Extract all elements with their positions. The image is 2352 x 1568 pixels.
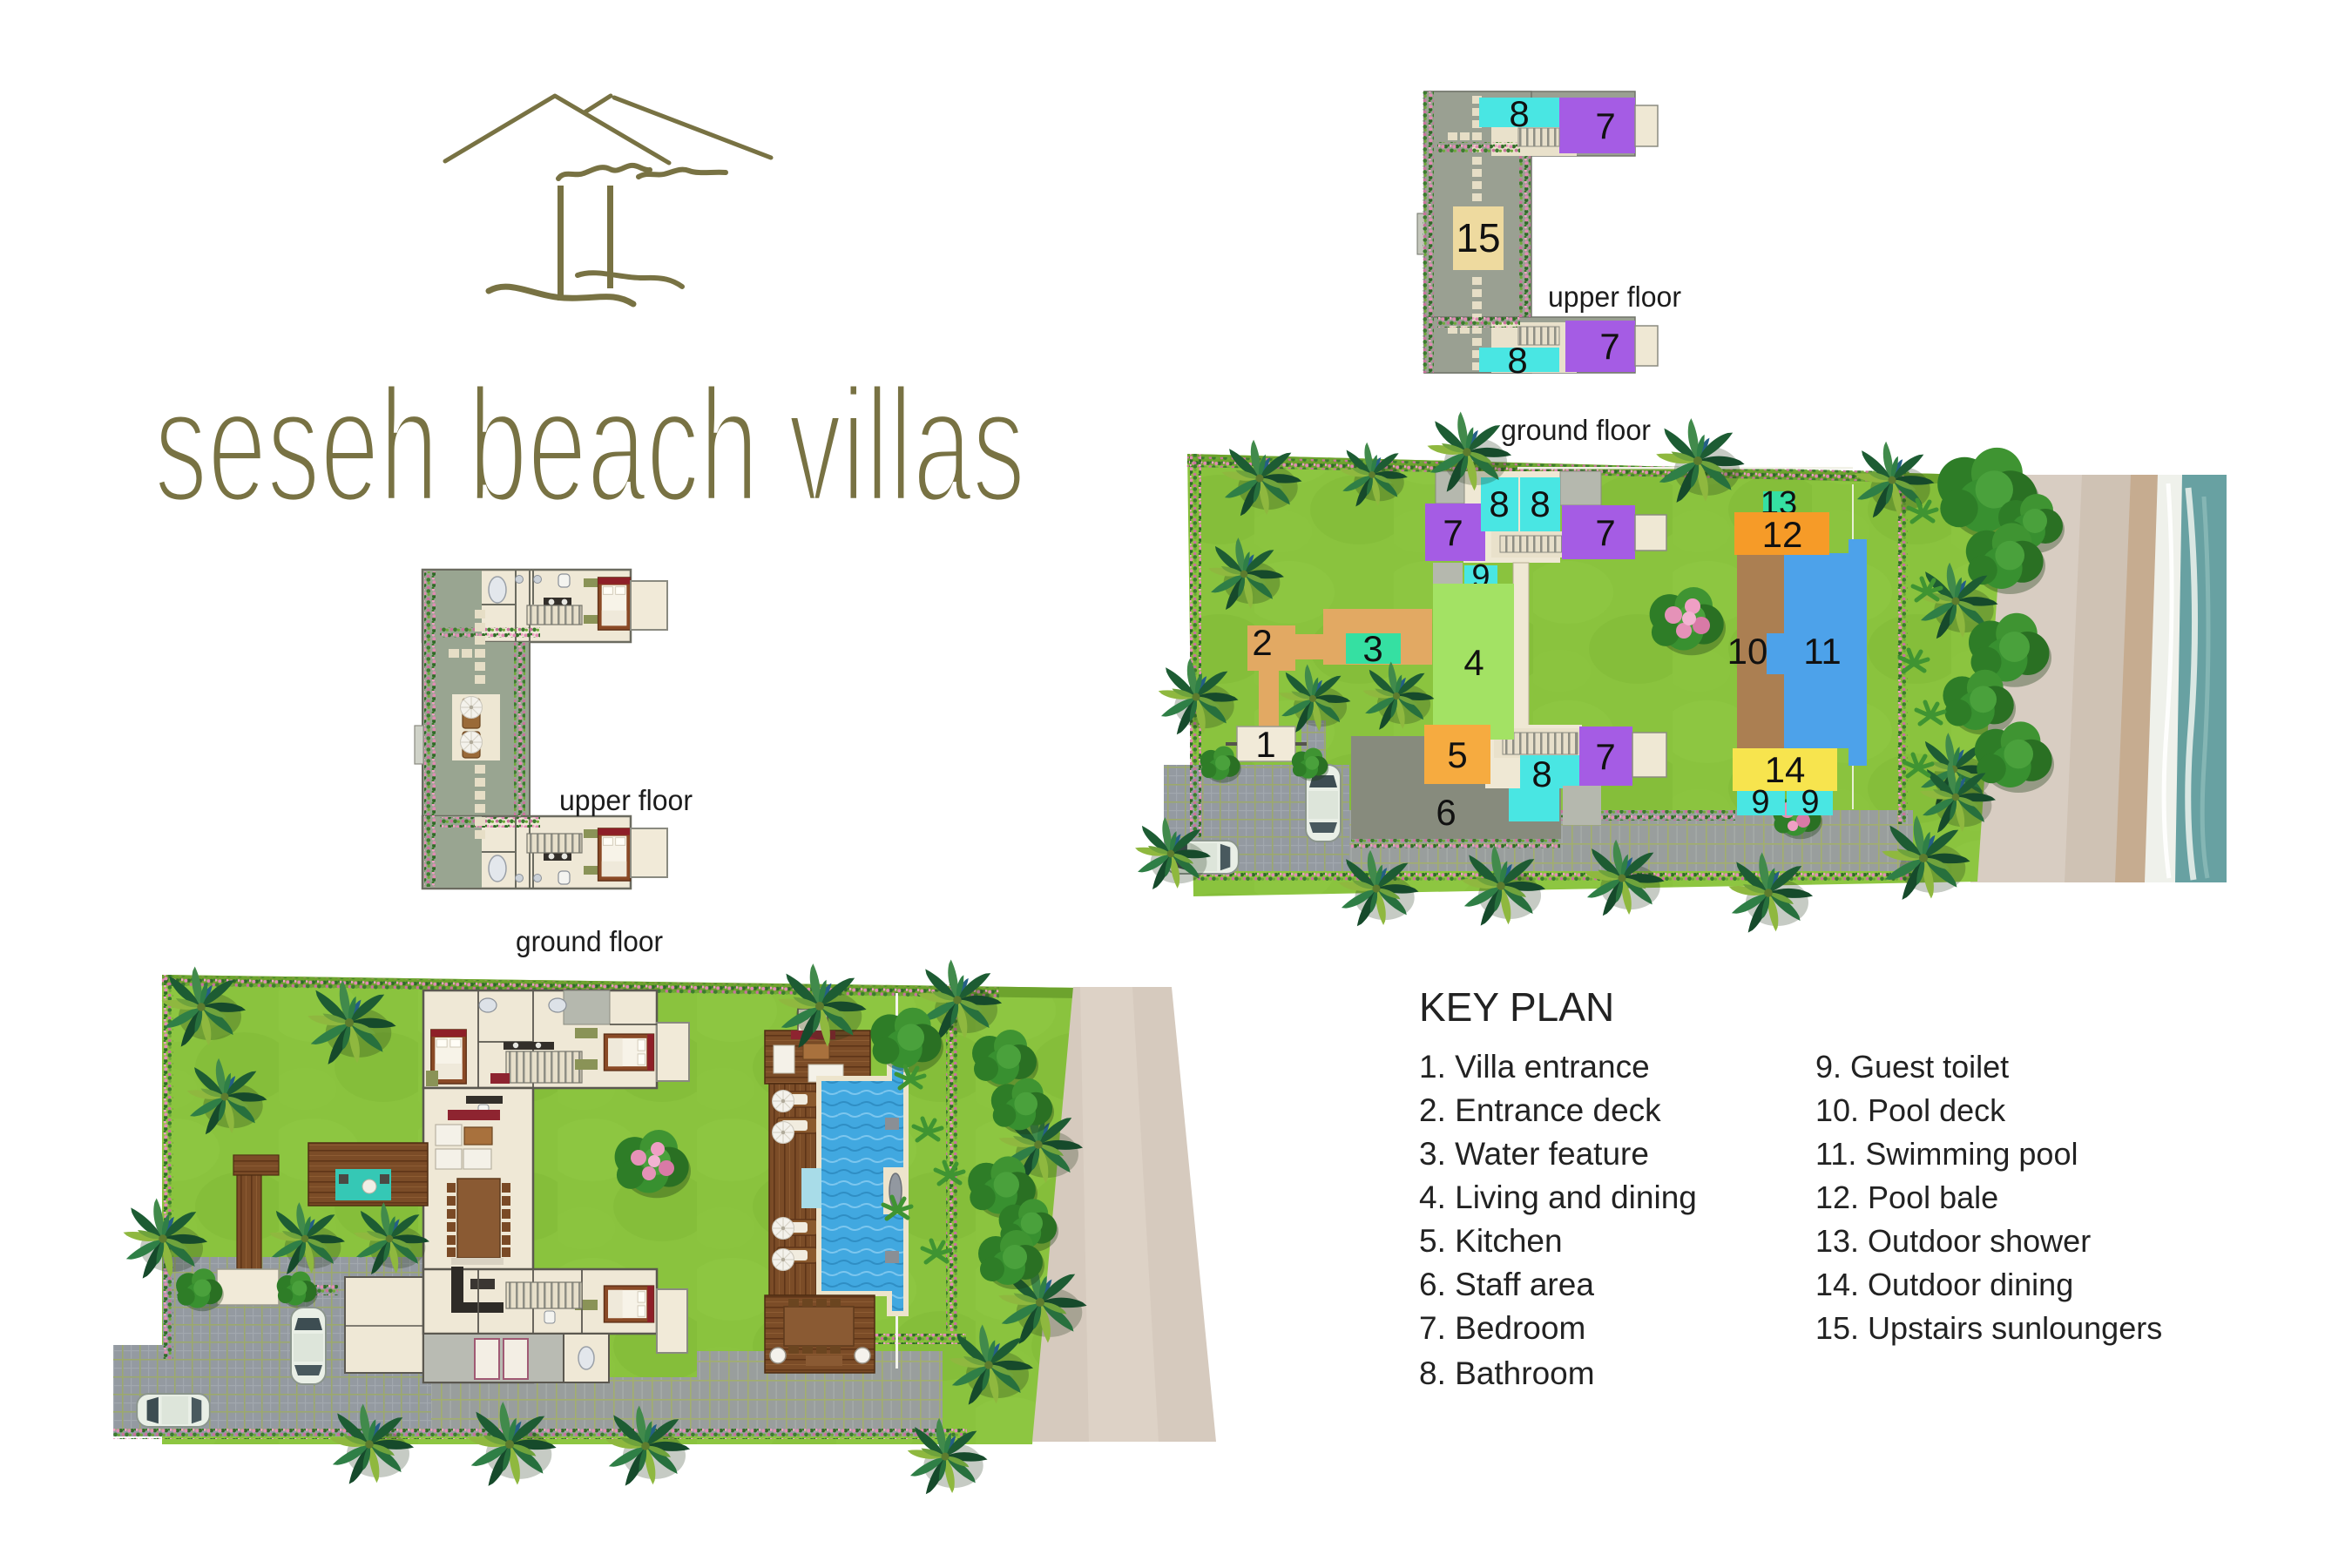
svg-text:6: 6: [1436, 792, 1456, 833]
svg-text:upper floor: upper floor: [559, 784, 693, 816]
svg-text:ground floor: ground floor: [516, 925, 663, 957]
svg-text:upper floor: upper floor: [1548, 280, 1681, 313]
svg-text:KEY PLAN: KEY PLAN: [1419, 984, 1614, 1030]
svg-text:7: 7: [1599, 326, 1619, 367]
svg-text:9: 9: [1751, 784, 1769, 821]
svg-text:14. Outdoor dining: 14. Outdoor dining: [1815, 1267, 2073, 1302]
svg-text:10: 10: [1727, 631, 1768, 672]
svg-text:10. Pool deck: 10. Pool deck: [1815, 1092, 2006, 1128]
svg-text:7. Bedroom: 7. Bedroom: [1419, 1310, 1585, 1346]
svg-text:3. Water feature: 3. Water feature: [1419, 1136, 1649, 1172]
svg-text:12: 12: [1762, 514, 1803, 555]
svg-text:11: 11: [1803, 631, 1842, 672]
svg-text:1: 1: [1255, 724, 1275, 765]
svg-text:13. Outdoor shower: 13. Outdoor shower: [1815, 1223, 2091, 1259]
svg-text:12. Pool bale: 12. Pool bale: [1815, 1179, 1998, 1215]
svg-text:9. Guest toilet: 9. Guest toilet: [1815, 1049, 2009, 1085]
svg-text:4. Living and dining: 4. Living and dining: [1419, 1179, 1697, 1215]
svg-text:8. Bathroom: 8. Bathroom: [1419, 1355, 1595, 1391]
svg-text:14: 14: [1765, 749, 1806, 790]
svg-text:7: 7: [1595, 512, 1615, 553]
svg-text:2. Entrance deck: 2. Entrance deck: [1419, 1092, 1661, 1128]
svg-text:8: 8: [1507, 340, 1527, 381]
svg-text:4: 4: [1463, 642, 1484, 683]
svg-text:seseh beach villas: seseh beach villas: [154, 355, 1025, 536]
svg-text:15: 15: [1456, 215, 1500, 260]
svg-text:5. Kitchen: 5. Kitchen: [1419, 1223, 1563, 1259]
svg-text:1. Villa entrance: 1. Villa entrance: [1419, 1049, 1650, 1085]
svg-text:3: 3: [1362, 628, 1382, 669]
svg-text:8: 8: [1530, 483, 1550, 524]
svg-text:7: 7: [1443, 512, 1463, 553]
svg-text:7: 7: [1595, 105, 1615, 146]
svg-text:ground floor: ground floor: [1501, 414, 1651, 446]
svg-text:11. Swimming pool: 11. Swimming pool: [1815, 1136, 2078, 1172]
svg-text:15. Upstairs sunloungers: 15. Upstairs sunloungers: [1815, 1310, 2162, 1346]
svg-text:5: 5: [1447, 734, 1467, 775]
svg-text:6. Staff area: 6. Staff area: [1419, 1267, 1594, 1302]
svg-text:9: 9: [1801, 784, 1819, 821]
svg-text:2: 2: [1252, 622, 1272, 663]
svg-text:8: 8: [1489, 483, 1509, 524]
svg-text:8: 8: [1531, 754, 1551, 794]
svg-text:7: 7: [1595, 736, 1615, 777]
